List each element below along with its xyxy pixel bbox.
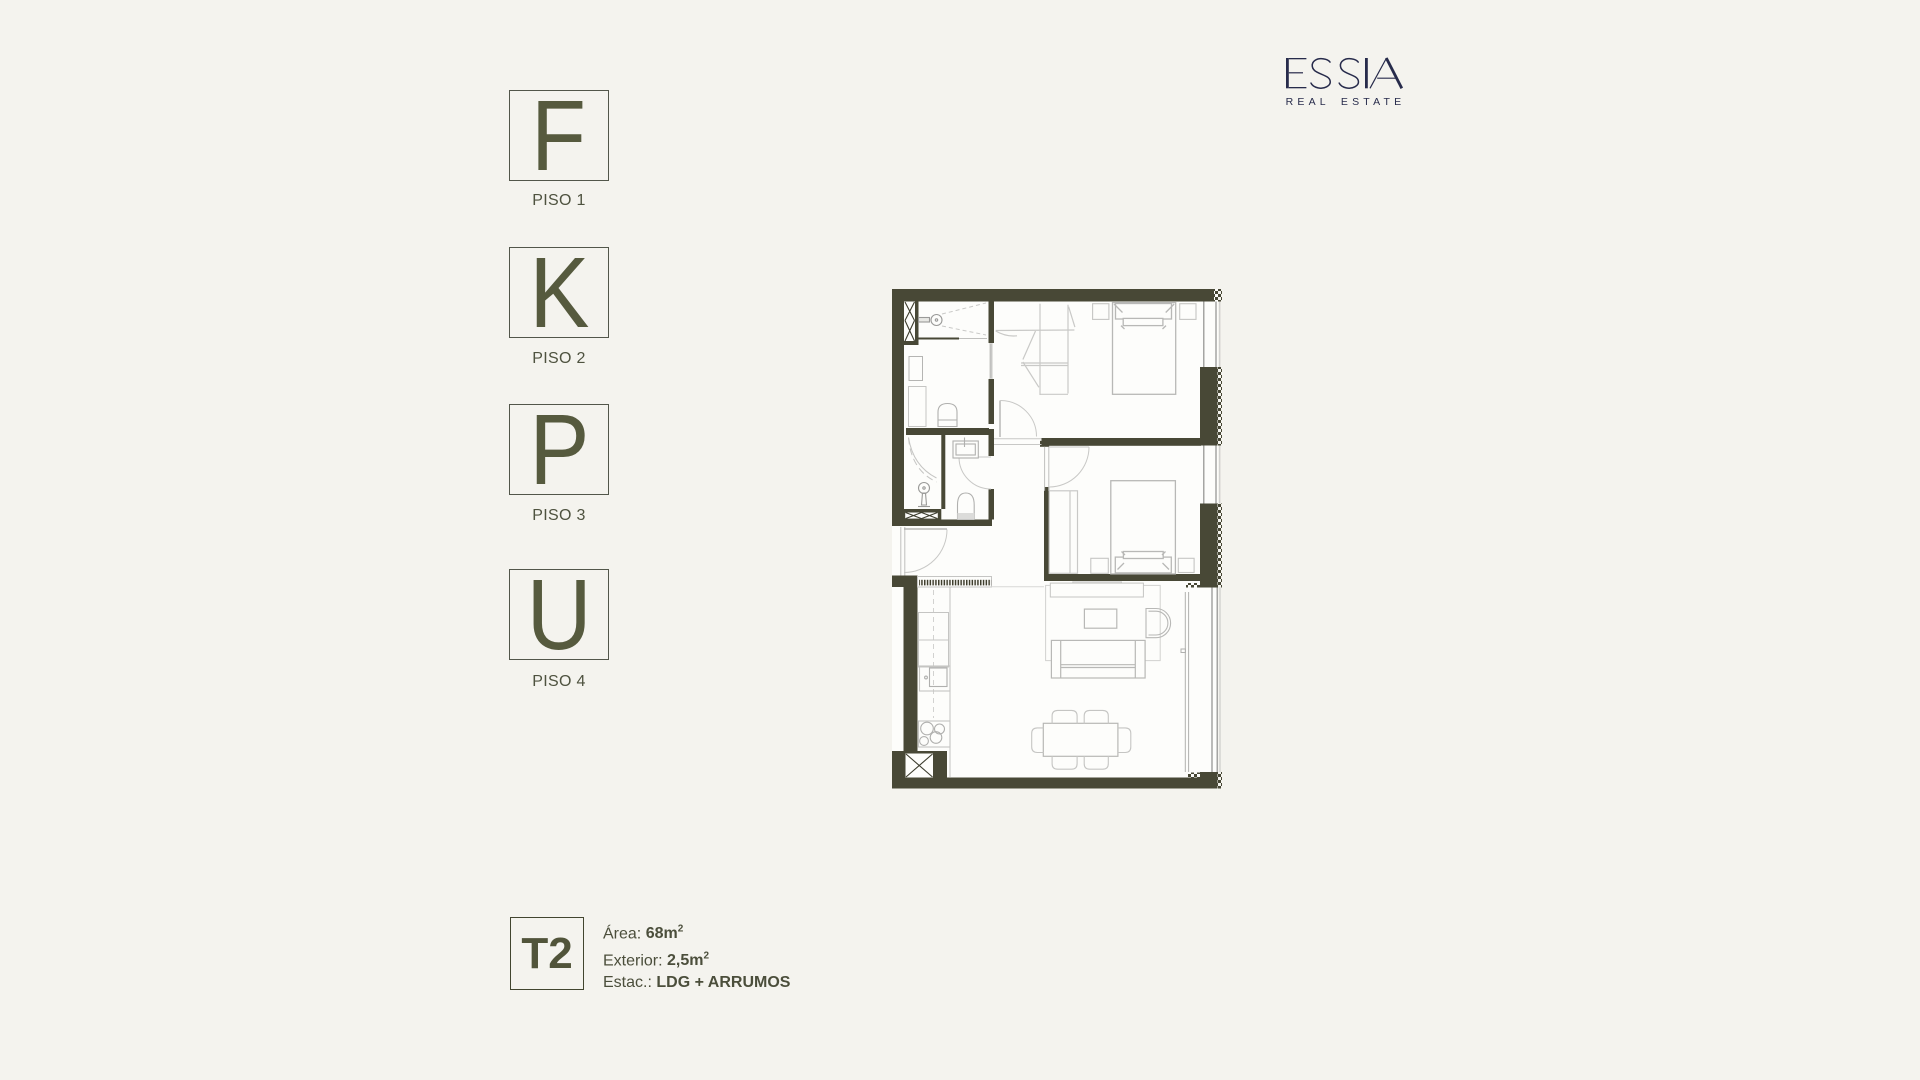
- svg-text:ESTATE: ESTATE: [1341, 96, 1405, 108]
- svg-text:REAL: REAL: [1286, 96, 1330, 108]
